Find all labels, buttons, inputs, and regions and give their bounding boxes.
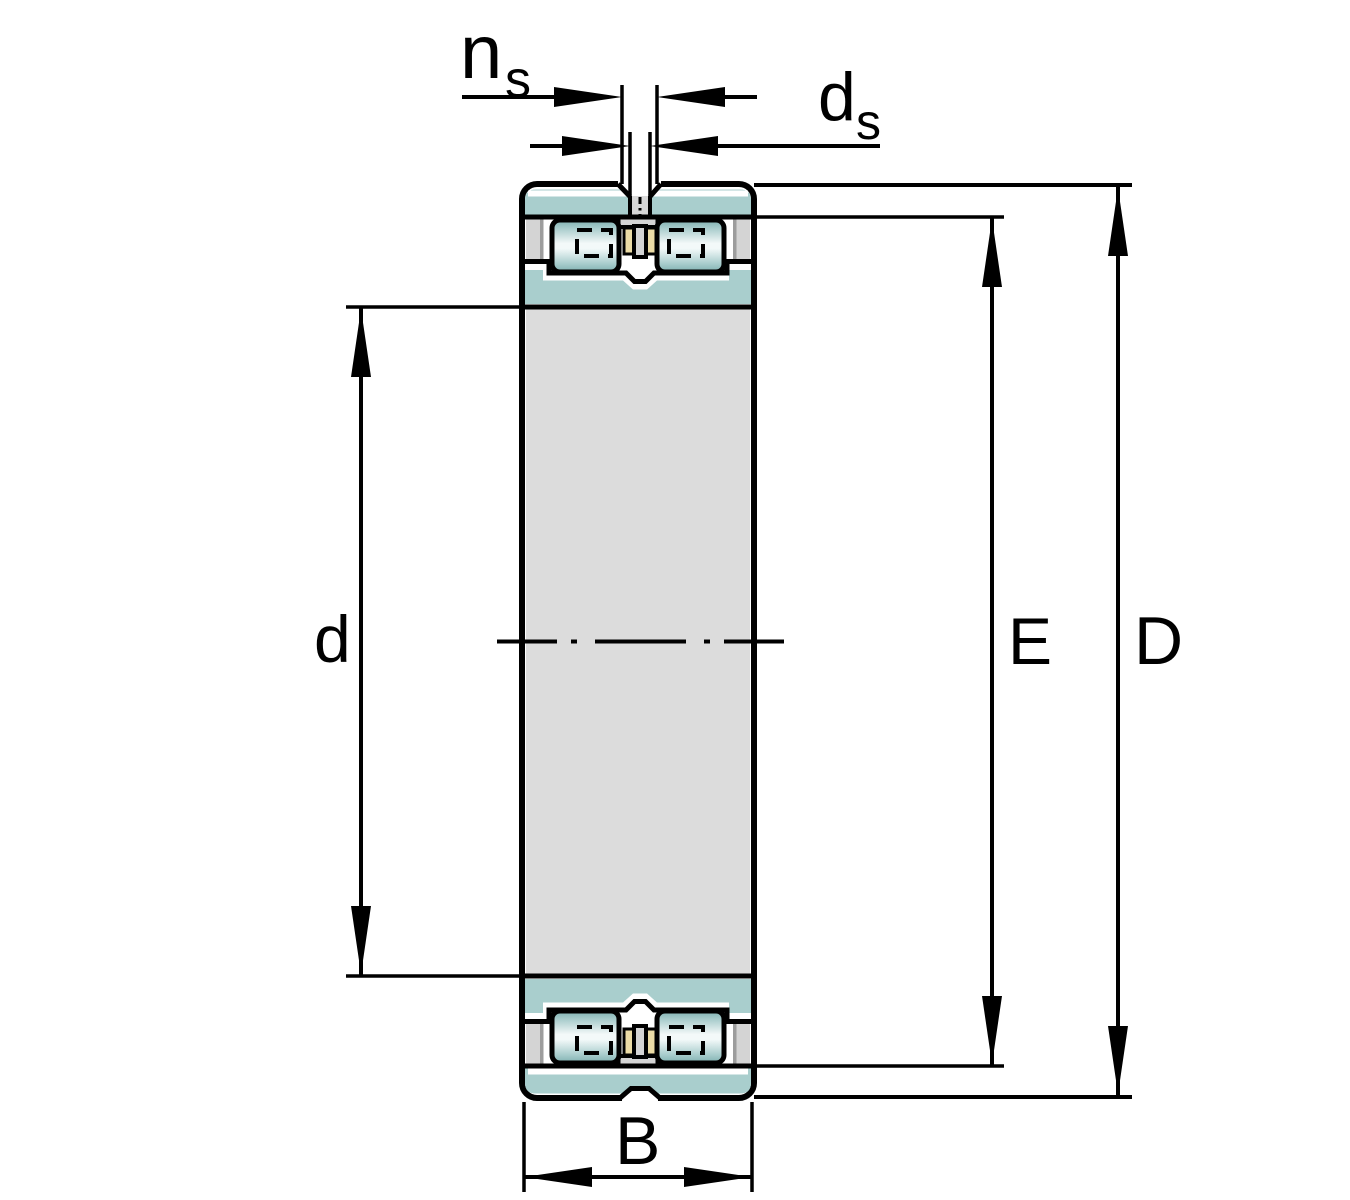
drawing-svg: n s d s d E D B [0,0,1350,1200]
right-recess-shadow [733,220,737,262]
outer-ring-bottom-highlight [528,1068,748,1075]
dimension-ns: n s [460,10,757,184]
left-recess-bottom-shadow [540,1022,544,1064]
dimension-D: D [754,185,1183,1097]
d-arrow-top [351,309,371,377]
outer-ring-rib-stem-bottom [634,1026,646,1057]
right-recess-bottom-shadow [733,1022,737,1064]
dimension-ds: d s [530,59,881,196]
E-extension-lines [754,217,1004,1066]
ns-label-subscript: s [505,51,531,109]
dimension-E: E [754,217,1052,1066]
B-arrow-right [684,1167,752,1187]
roller-top-left [552,220,619,272]
bearing-section-drawing: n s d s d E D B [0,0,1350,1200]
B-arrow-left [524,1167,592,1187]
d-arrow-bottom [351,906,371,974]
dimension-B: B [524,1102,752,1192]
outer-ring-rib-stem [634,226,646,257]
cage-bar-left [624,228,634,254]
D-arrow-bottom [1108,1026,1128,1094]
ds-label: d [818,59,856,135]
d-extension-lines [346,307,522,976]
ds-arrow-left [562,136,630,156]
D-extension-lines [754,185,1132,1097]
ns-arrow-left [554,87,622,107]
left-recess-shadow [540,220,544,262]
roller-bottom-left [552,1011,619,1063]
cage-bar-left-bottom [624,1029,634,1055]
E-arrow-top [982,219,1002,287]
ds-label-subscript: s [856,94,881,150]
dimension-d: d [314,307,522,976]
ns-label: n [460,10,502,95]
B-label: B [615,1103,660,1179]
ds-arrow-right [650,136,718,156]
E-arrow-bottom [982,996,1002,1064]
D-arrow-top [1108,188,1128,256]
E-label: E [1008,604,1052,678]
bearing-body [497,178,784,1103]
D-label: D [1134,603,1183,679]
d-label: d [314,602,351,676]
ns-arrow-right [657,87,725,107]
